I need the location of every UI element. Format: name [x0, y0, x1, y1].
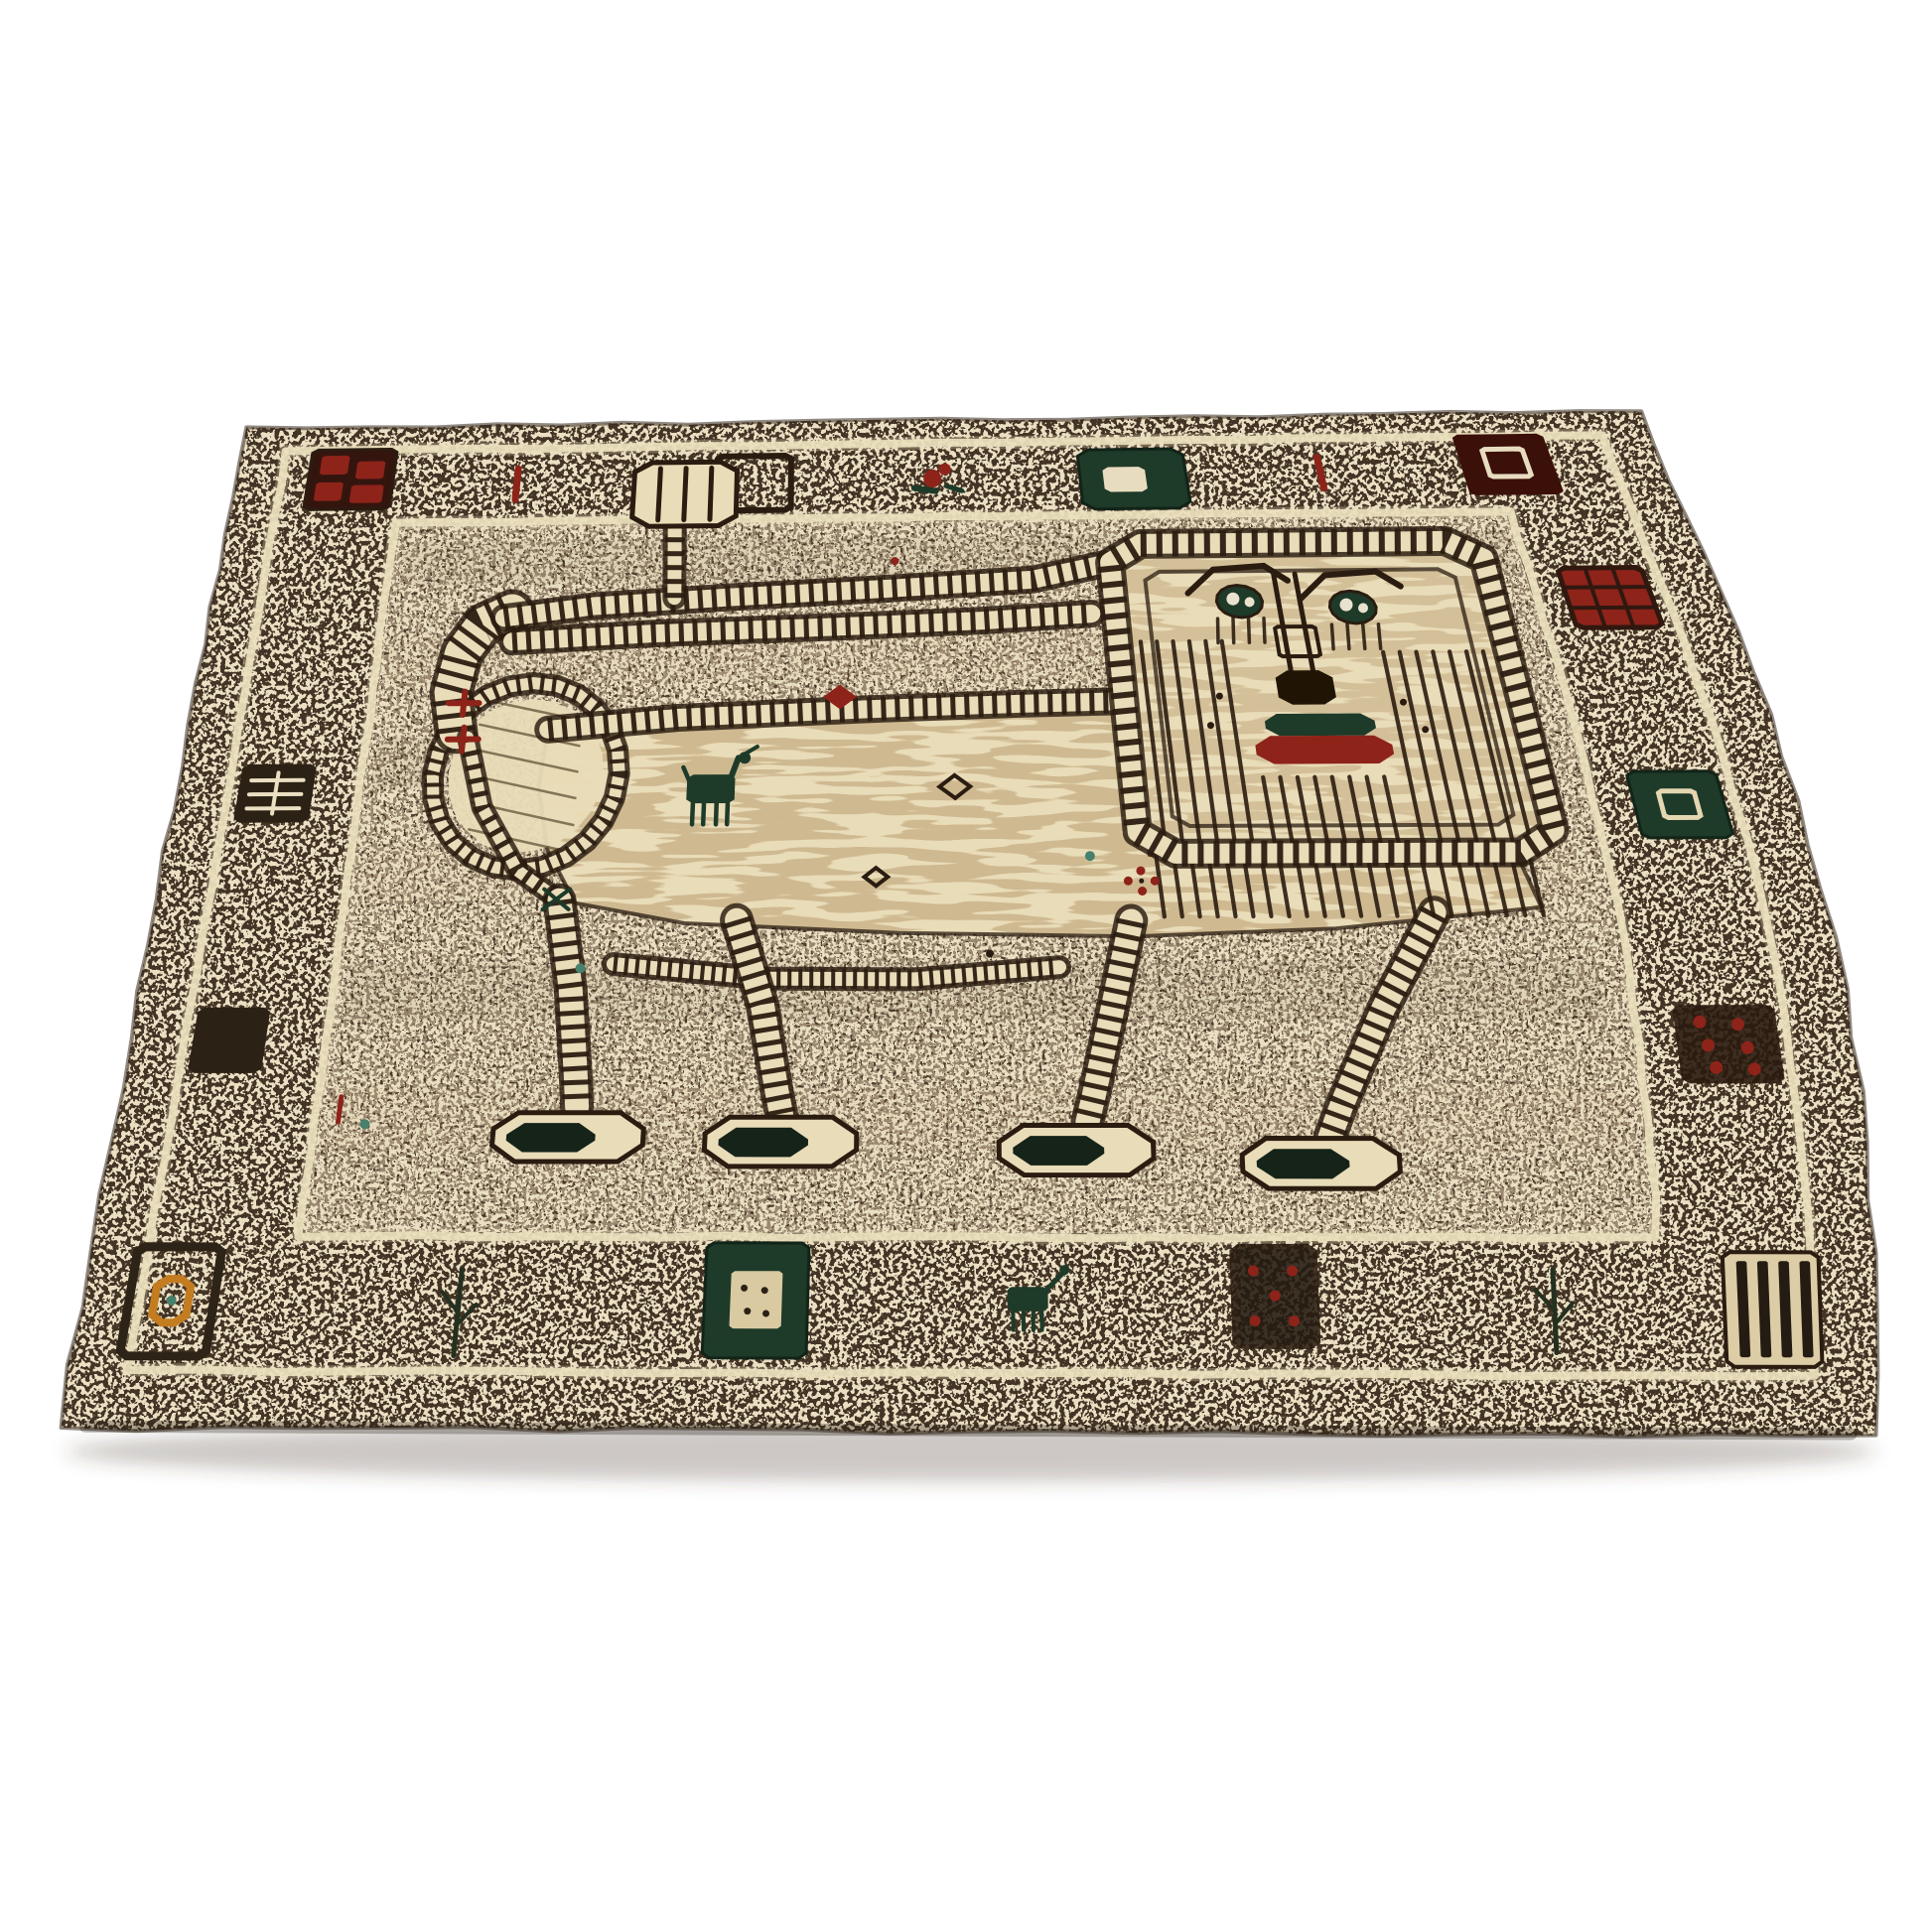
- red-dash-top-1: [515, 469, 518, 499]
- field-motif-dash2-7: [339, 1097, 342, 1122]
- lion-foot-2: [704, 1117, 856, 1167]
- corner-pinwheel-square: [304, 450, 397, 510]
- green-speck-square-bottom: [702, 1243, 809, 1358]
- red-dot-square-right: [1673, 1005, 1785, 1083]
- field-motif-dot-10: [986, 950, 994, 958]
- lion-leg-rear-1: [560, 900, 578, 1107]
- rug-photo-canvas: [0, 0, 1932, 1932]
- lion-foot-4: [1242, 1139, 1400, 1189]
- lion-foot-1: [492, 1113, 644, 1162]
- rug-photo: [0, 0, 1932, 1932]
- field-motif-dot-4: [1085, 851, 1095, 861]
- field-motif-dot-1: [891, 557, 898, 565]
- tail-comb: [632, 462, 738, 526]
- lion-head: [1110, 541, 1555, 916]
- field-motif-dot-9: [576, 963, 586, 973]
- lion-mouth: [1255, 714, 1394, 764]
- field-motif-dot-8: [360, 1119, 370, 1129]
- dark-square-left: [188, 1008, 270, 1073]
- red-grid-right: [1559, 568, 1662, 628]
- red-dot-square-bottom: [1232, 1246, 1318, 1346]
- corner-stripes-square: [1723, 1252, 1823, 1367]
- green-rect-top: [1077, 449, 1190, 509]
- dark-grid-left: [234, 764, 317, 823]
- green-square-right: [1627, 771, 1733, 838]
- scene: [62, 411, 1878, 1481]
- lion-foot-3: [999, 1126, 1154, 1175]
- rug: [62, 411, 1878, 1437]
